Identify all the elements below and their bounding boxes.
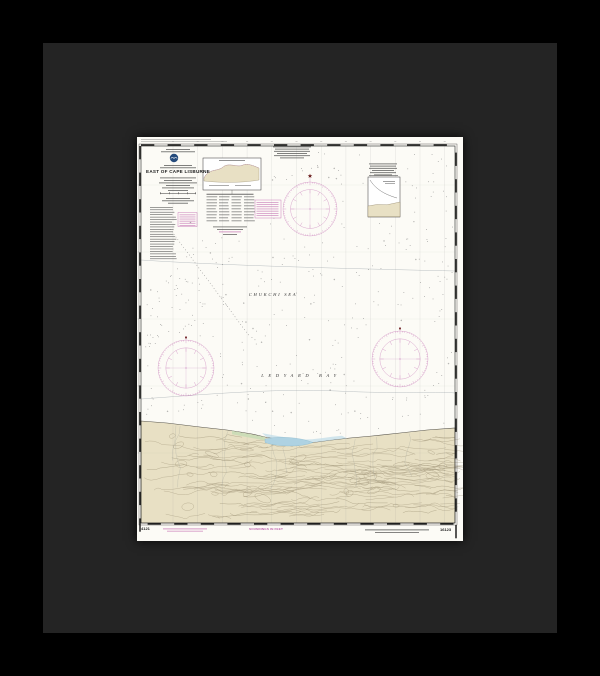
framed-chart-photo: EAST OF CAPE LISBURNE CHUKCHI SEA LEDYAR… [0,0,600,676]
soundings-in-feet-note: SOUNDINGS IN FEET [233,527,299,531]
sea-label-chukchi-sea: CHUKCHI SEA [233,292,313,297]
chart-graphics [137,137,463,541]
mat: EAST OF CAPE LISBURNE CHUKCHI SEA LEDYAR… [43,43,557,633]
chart-number: 16123 [440,527,451,532]
print-number: 4121 [141,526,150,531]
sea-label-ledyard-bay: LEDYARD BAY [253,373,349,378]
chart-paper: EAST OF CAPE LISBURNE CHUKCHI SEA LEDYAR… [137,137,463,541]
chart-title: EAST OF CAPE LISBURNE [143,169,213,174]
